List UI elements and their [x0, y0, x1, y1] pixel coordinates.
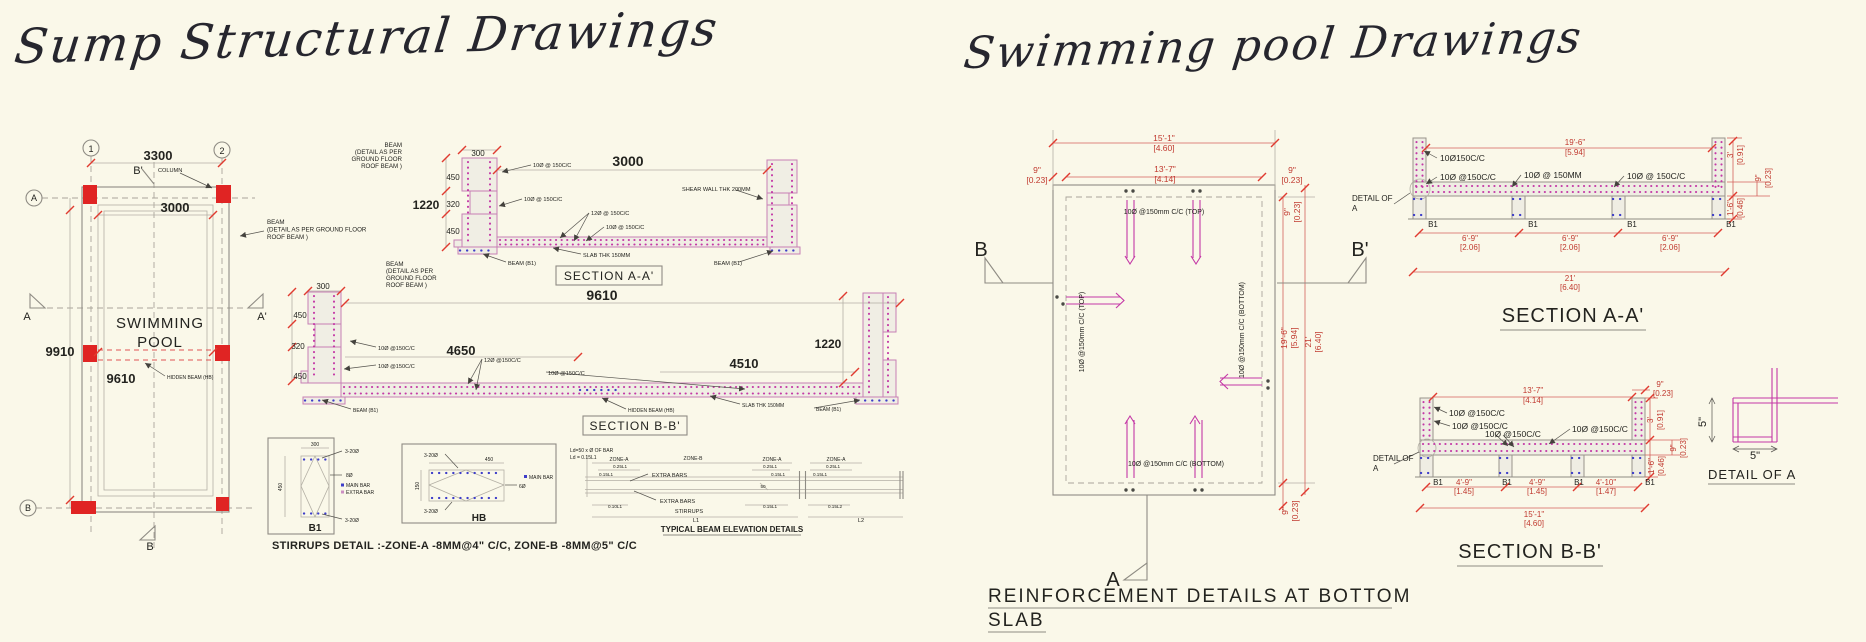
pool-dim-21-m: [6.40]: [1313, 331, 1323, 352]
pool-dim-9-left-m: [0.23]: [1026, 175, 1047, 185]
elev-l2: L2: [858, 518, 864, 524]
plan-label-a: A: [23, 311, 31, 323]
aa-dim-450b: 450: [446, 227, 460, 236]
hb-stirrup-dia: 6Ø: [519, 484, 526, 490]
drawing-svg: 1 2 A B 3300 B' COLUMN 3000 BEAM (DETAIL…: [0, 0, 1866, 642]
bb-beam-note-3: GROUND FLOOR: [386, 275, 437, 282]
pool-aa-title: SECTION A-A': [1502, 305, 1645, 327]
elev-ld-value: Ld = 0.15L1: [570, 455, 597, 461]
plan-label-b-bottom: B: [146, 541, 153, 553]
drawing-sheet: Sump Structural Drawings Swimming pool D…: [0, 0, 1866, 642]
column-mid-right: [215, 345, 230, 361]
pool-aa-d69-1m: [2.06]: [1460, 243, 1480, 252]
elev-f2: 0.15L1: [771, 472, 785, 477]
pool-bb-dim-9t: 9": [1656, 380, 1663, 389]
pool-bb-b1-2: B1: [1502, 478, 1512, 487]
b1-dim-300: 300: [311, 442, 320, 448]
grid-bubble-a: A: [31, 193, 37, 203]
elev-f1: 0.15L1: [599, 472, 613, 477]
grid-bubble-b: B: [25, 503, 31, 513]
pool-marker-b: B: [974, 239, 987, 261]
pool-aa-dim-21: 21': [1565, 274, 1576, 283]
pool-marker-b-prime: B': [1351, 239, 1368, 261]
pool-bb-dim-9: 9": [1669, 444, 1678, 451]
column-top-left: [83, 185, 97, 204]
bb-beam-note-4: ROOF BEAM ): [386, 282, 427, 289]
plan-beam-note-3: ROOF BEAM ): [267, 234, 308, 241]
aa-rebar-4: 10Ø @ 150C/C: [606, 225, 644, 231]
pool-bb-dim-16: 1'-6": [1647, 458, 1656, 474]
pool-plan-bar-dots: [1055, 189, 1269, 491]
bb-dim-300: 300: [316, 282, 330, 291]
pool-bb-d1: 4'-9": [1456, 478, 1472, 487]
aa-rebar-3: 12Ø @ 150C/C: [591, 211, 629, 217]
plan-dim-3000: 3000: [161, 200, 190, 215]
bb-rebar-4: 10Ø @150C/C: [548, 371, 585, 377]
pool-bb-d2: 4'-9": [1529, 478, 1545, 487]
bb-hidden-beam: HIDDEN BEAM (HB): [628, 408, 675, 414]
pool-bb-dim-3-m: [0.91]: [1656, 410, 1665, 430]
section-marker-a-left: [30, 294, 45, 308]
pool-aa-pedestal-dots: [1414, 199, 1724, 215]
pool-dim-9-bottom-m: [0.23]: [1290, 500, 1300, 521]
elev-t3: 0.15L2: [828, 504, 842, 509]
pool-dim-13-7: 13'-7": [1154, 164, 1176, 174]
bb-rebar-2: 10Ø @150C/C: [378, 364, 415, 370]
grid-bubble-1: 1: [88, 144, 93, 154]
pool-bb-rebar-1: 10Ø @150C/C: [1449, 408, 1505, 418]
elev-q2: 0.25L1: [763, 464, 777, 469]
pool-bb-b1-1: B1: [1433, 478, 1443, 487]
elev-t2: 0.15L1: [763, 504, 777, 509]
pool-plan-title-2: SLAB: [988, 610, 1045, 631]
bb-title: SECTION B-B': [590, 419, 681, 433]
detail-a-dim-5v: 5": [1697, 417, 1709, 427]
aa-beam-note-2: (DETAIL AS PER: [355, 149, 403, 156]
pool-aa-b1-2: B1: [1528, 220, 1538, 229]
detail-of-a: 5" 5" DETAIL OF A: [1697, 368, 1838, 484]
pool-aa-b1-4: B1: [1726, 220, 1736, 229]
pool-left-bar-label: 10Ø @150mm C/C (TOP): [1079, 292, 1086, 373]
bb-dim-4650: 4650: [447, 343, 476, 358]
elev-fifty: 50: [760, 484, 766, 489]
grid-bubble-2: 2: [219, 146, 224, 156]
hb-dim-450: 450: [485, 457, 494, 463]
aa-beam-note-3: GROUND FLOOR: [351, 156, 402, 163]
pool-marker-a-flag: [1124, 563, 1147, 580]
pool-bb-pedestal-dots: [1421, 458, 1644, 473]
pool-dim-19-6-m: [5.94]: [1289, 327, 1299, 348]
plan-hidden-beam-label: HIDDEN BEAM (HB): [167, 375, 214, 381]
aa-dim-1220: 1220: [413, 198, 440, 212]
pool-dim-21: 21': [1303, 336, 1313, 347]
pool-bb-title: SECTION B-B': [1458, 541, 1602, 563]
pool-aa-dim-16: 1'-6": [1726, 200, 1735, 216]
pool-aa-rebar-4: 10Ø @ 150C/C: [1627, 171, 1685, 181]
elev-extra-bars-1: EXTRA BARS: [652, 473, 687, 479]
section-marker-b-bottom: [140, 526, 155, 540]
elev-q1: 0.25L1: [613, 464, 627, 469]
pool-aa-d69-3: 6'-9": [1662, 234, 1678, 243]
pool-aa-d69-3m: [2.06]: [1660, 243, 1680, 252]
b1-legend-main-bar: MAIN BAR: [346, 483, 371, 489]
pool-dim-13-7-m: [4.14]: [1154, 174, 1175, 184]
pool-aa-dim-21-m: [6.40]: [1560, 283, 1580, 292]
elev-q3: 0.25L1: [826, 464, 840, 469]
pool-aa-b1-3: B1: [1627, 220, 1637, 229]
pool-bb-b1-4: B1: [1645, 478, 1655, 487]
elev-ld-formula: Ld=50 x Ø OF BAR: [570, 448, 614, 454]
column-bottom-right: [216, 497, 229, 511]
pool-bb-dim-9t-m: [0.23]: [1653, 389, 1673, 398]
bb-dim-4510: 4510: [730, 356, 759, 371]
pool-bb-detail-ref-2: A: [1373, 464, 1379, 473]
plan-dim-3300: 3300: [144, 148, 173, 163]
bb-dim-450a: 450: [293, 311, 307, 320]
hb-bottom-bars: 3-20Ø: [424, 509, 438, 515]
pool-bb-rebar-3: 10Ø @150C/C: [1485, 429, 1541, 439]
bb-dim-320: 320: [291, 342, 305, 351]
elev-zone-a1: ZONE-A: [610, 457, 630, 463]
pool-marker-b-prime-flag: [1348, 258, 1366, 283]
pool-aa-d69-2: 6'-9": [1562, 234, 1578, 243]
section-marker-a-right: [248, 294, 263, 308]
pool-aa-rebar-2: 10Ø @150C/C: [1440, 172, 1496, 182]
b1-detail: 300 3-20Ø 8Ø MAIN BAR EXTRA BAR 450 3-20…: [268, 438, 374, 534]
elev-zone-a3: ZONE-A: [827, 457, 847, 463]
pool-bb-dim-16-m: [0.46]: [1657, 456, 1666, 476]
sump-section-bb: BEAM (DETAIL AS PER GROUND FLOOR ROOF BE…: [288, 261, 904, 435]
plan-label-b-prime: B': [133, 165, 142, 177]
aa-dim-300: 300: [471, 149, 485, 158]
pool-aa-rebar-3: 10Ø @ 150MM: [1524, 170, 1582, 180]
beam-elevation: Ld=50 x Ø OF BAR Ld = 0.15L1 ZONE-A ZONE…: [570, 448, 903, 535]
plan-beam-note-2: (DETAIL AS PER GROUND FLOOR: [267, 227, 367, 234]
pool-label-1: SWIMMING: [116, 315, 204, 332]
pool-bb-rebar-4: 10Ø @150C/C: [1572, 424, 1628, 434]
aa-beam-b1-left: BEAM (B1): [508, 261, 536, 267]
bb-dim-9610: 9610: [586, 287, 617, 303]
aa-rebar-1: 10Ø @ 150C/C: [533, 163, 571, 169]
pool-bb-dim-13-7: 13'-7": [1523, 386, 1544, 395]
detail-a-dim-5h: 5": [1750, 450, 1760, 462]
pool-bb-dim-15-1: 15'-1": [1524, 510, 1545, 519]
elev-zone-a2: ZONE-A: [763, 457, 783, 463]
aa-beam-note-1: BEAM: [384, 142, 402, 149]
pool-marker-b-flag: [985, 258, 1003, 283]
aa-beam-note-4: ROOF BEAM ): [361, 163, 402, 170]
pool-dim-9-rv: 9": [1282, 208, 1292, 216]
bb-dim-1220: 1220: [815, 337, 842, 351]
column-mid-left: [83, 345, 97, 362]
column-top-right: [216, 185, 231, 203]
bb-beam-note-2: (DETAIL AS PER: [386, 268, 434, 275]
pool-bb-d3: 4'-10": [1596, 478, 1617, 487]
pool-aa-detail-ref-2: A: [1352, 204, 1358, 213]
plan-dim-9610: 9610: [107, 371, 136, 386]
aa-shear-wall-note: SHEAR WALL THK 200MM: [682, 187, 751, 193]
pool-aa-rebar-1: 10Ø150C/C: [1440, 153, 1485, 163]
pool-bb-dim-13-7-m: [4.14]: [1523, 396, 1543, 405]
b1-dim-450: 450: [278, 483, 284, 492]
stirrups-note: STIRRUPS DETAIL :-ZONE-A -8MM@4" C/C, ZO…: [272, 540, 637, 552]
aa-beam-b1-right: BEAM (B1): [714, 261, 742, 267]
aa-dim-3000: 3000: [612, 153, 643, 169]
pool-plan-red-ticks: [1049, 139, 1309, 510]
pool-aa-dim-9-m: [0.23]: [1764, 168, 1773, 188]
pool-aa-d69-2m: [2.06]: [1560, 243, 1580, 252]
b1-top-bars: 3-20Ø: [345, 449, 359, 455]
detail-a-title: DETAIL OF A: [1708, 467, 1796, 482]
pool-label-2: POOL: [137, 334, 183, 351]
elev-extra-bars-2: EXTRA BARS: [660, 499, 695, 505]
plan-dim-9910: 9910: [46, 344, 75, 359]
plan-beam-note-1: BEAM: [267, 219, 285, 226]
pool-bottom-bar-label: 10Ø @150mm C/C (BOTTOM): [1128, 461, 1224, 468]
plan-label-column: COLUMN: [158, 168, 182, 174]
pool-plan: 15'-1" [4.60] 13'-7" [4.14] 9" [0.23] 9"…: [974, 130, 1411, 632]
pool-bb-d3-m: [1.47]: [1596, 487, 1616, 496]
elev-title: TYPICAL BEAM ELEVATION DETAILS: [661, 525, 804, 534]
pool-aa-detail-ref-1: DETAIL OF: [1352, 194, 1393, 203]
pool-bb-d1-m: [1.45]: [1454, 487, 1474, 496]
pool-dim-15-1-m: [4.60]: [1153, 143, 1174, 153]
pool-aa-dim-9: 9": [1754, 174, 1763, 181]
pool-dim-19-6: 19'-6": [1279, 327, 1289, 349]
pool-section-bb: 13'-7" [4.14] 9" [0.23] 10Ø @150C/C 10Ø …: [1373, 380, 1688, 566]
elev-zone-b: ZONE-B: [684, 456, 704, 462]
pool-section-aa: 19'-6" [5.94] 10Ø150C/C 10Ø @150C/C 10Ø …: [1352, 137, 1773, 330]
aa-rebar-2: 10Ø @ 150C/C: [524, 197, 562, 203]
b1-name: B1: [309, 523, 322, 534]
pool-aa-dim-3: 3': [1726, 152, 1735, 158]
pool-bb-dim-9-m: [0.23]: [1679, 438, 1688, 458]
b1-stirrup-dia: 8Ø: [346, 473, 353, 479]
pool-plan-rebar: [1066, 200, 1262, 478]
pool-aa-dim-16-m: [0.46]: [1736, 198, 1745, 218]
aa-dim-450a: 450: [446, 173, 460, 182]
pool-dim-9-bottom: 9": [1280, 507, 1290, 515]
sump-section-aa: BEAM (DETAIL AS PER GROUND FLOOR ROOF BE…: [351, 142, 800, 285]
pool-dim-9-rv-m: [0.23]: [1292, 201, 1302, 222]
hb-dim-150: 150: [415, 482, 421, 491]
bb-beam-b1-left: BEAM (B1): [353, 408, 378, 414]
pool-dim-9-right: 9": [1288, 165, 1296, 175]
aa-slab-note: SLAB THK 150MM: [583, 253, 630, 259]
pool-dim-9-left: 9": [1033, 165, 1041, 175]
pool-aa-dim-19-6-m: [5.94]: [1565, 148, 1585, 157]
bb-beam-b1-right: BEAM (B1): [816, 407, 841, 413]
aa-dim-320: 320: [446, 200, 460, 209]
pool-aa-d69-1: 6'-9": [1462, 234, 1478, 243]
column-bottom-left: [71, 501, 96, 514]
hb-top-bars: 3-20Ø: [424, 453, 438, 459]
b1-legend-extra-bar: EXTRA BAR: [346, 490, 374, 496]
hb-detail: 3-20Ø 450 MAIN BAR 6Ø 150 3-20Ø HB: [402, 444, 556, 524]
plan-label-a-prime: A': [257, 311, 266, 323]
bb-rebar-1: 10Ø @150C/C: [378, 346, 415, 352]
bb-slab-note: SLAB THK 150MM: [742, 403, 784, 409]
pool-top-bar-label: 10Ø @150mm C/C (TOP): [1124, 209, 1205, 216]
bb-rebar-3: 12Ø @150C/C: [484, 358, 521, 364]
aa-title: SECTION A-A': [564, 269, 654, 283]
elev-t1: 0.10L1: [608, 504, 622, 509]
pool-right-bar-label: 10Ø @150mm C/C (BOTTOM): [1239, 282, 1246, 378]
bb-beam-note-1: BEAM: [386, 261, 404, 268]
elev-l1: L1: [693, 518, 699, 524]
pool-aa-b1-1: B1: [1428, 220, 1438, 229]
pool-plan-title-1: REINFORCEMENT DETAILS AT BOTTOM: [988, 586, 1411, 607]
pool-bb-b1-3: B1: [1574, 478, 1584, 487]
elev-f3: 0.15L1: [813, 472, 827, 477]
b1-bottom-bars: 3-20Ø: [345, 518, 359, 524]
pool-bb-detail-ref-1: DETAIL OF: [1373, 454, 1414, 463]
hb-name: HB: [472, 513, 486, 524]
pool-aa-dim-19-6: 19'-6": [1565, 138, 1586, 147]
pool-dim-15-1: 15'-1": [1153, 133, 1175, 143]
pool-bb-dim-3: 3': [1646, 417, 1655, 423]
elev-stirrups: STIRRUPS: [675, 509, 704, 515]
pool-bb-dim-15-1-m: [4.60]: [1524, 519, 1544, 528]
bb-dim-450b: 450: [293, 372, 307, 381]
pool-dim-9-right-m: [0.23]: [1281, 175, 1302, 185]
pool-aa-dim-3-m: [0.91]: [1736, 145, 1745, 165]
pool-bb-d2-m: [1.45]: [1527, 487, 1547, 496]
hb-legend-main-bar: MAIN BAR: [529, 475, 554, 481]
